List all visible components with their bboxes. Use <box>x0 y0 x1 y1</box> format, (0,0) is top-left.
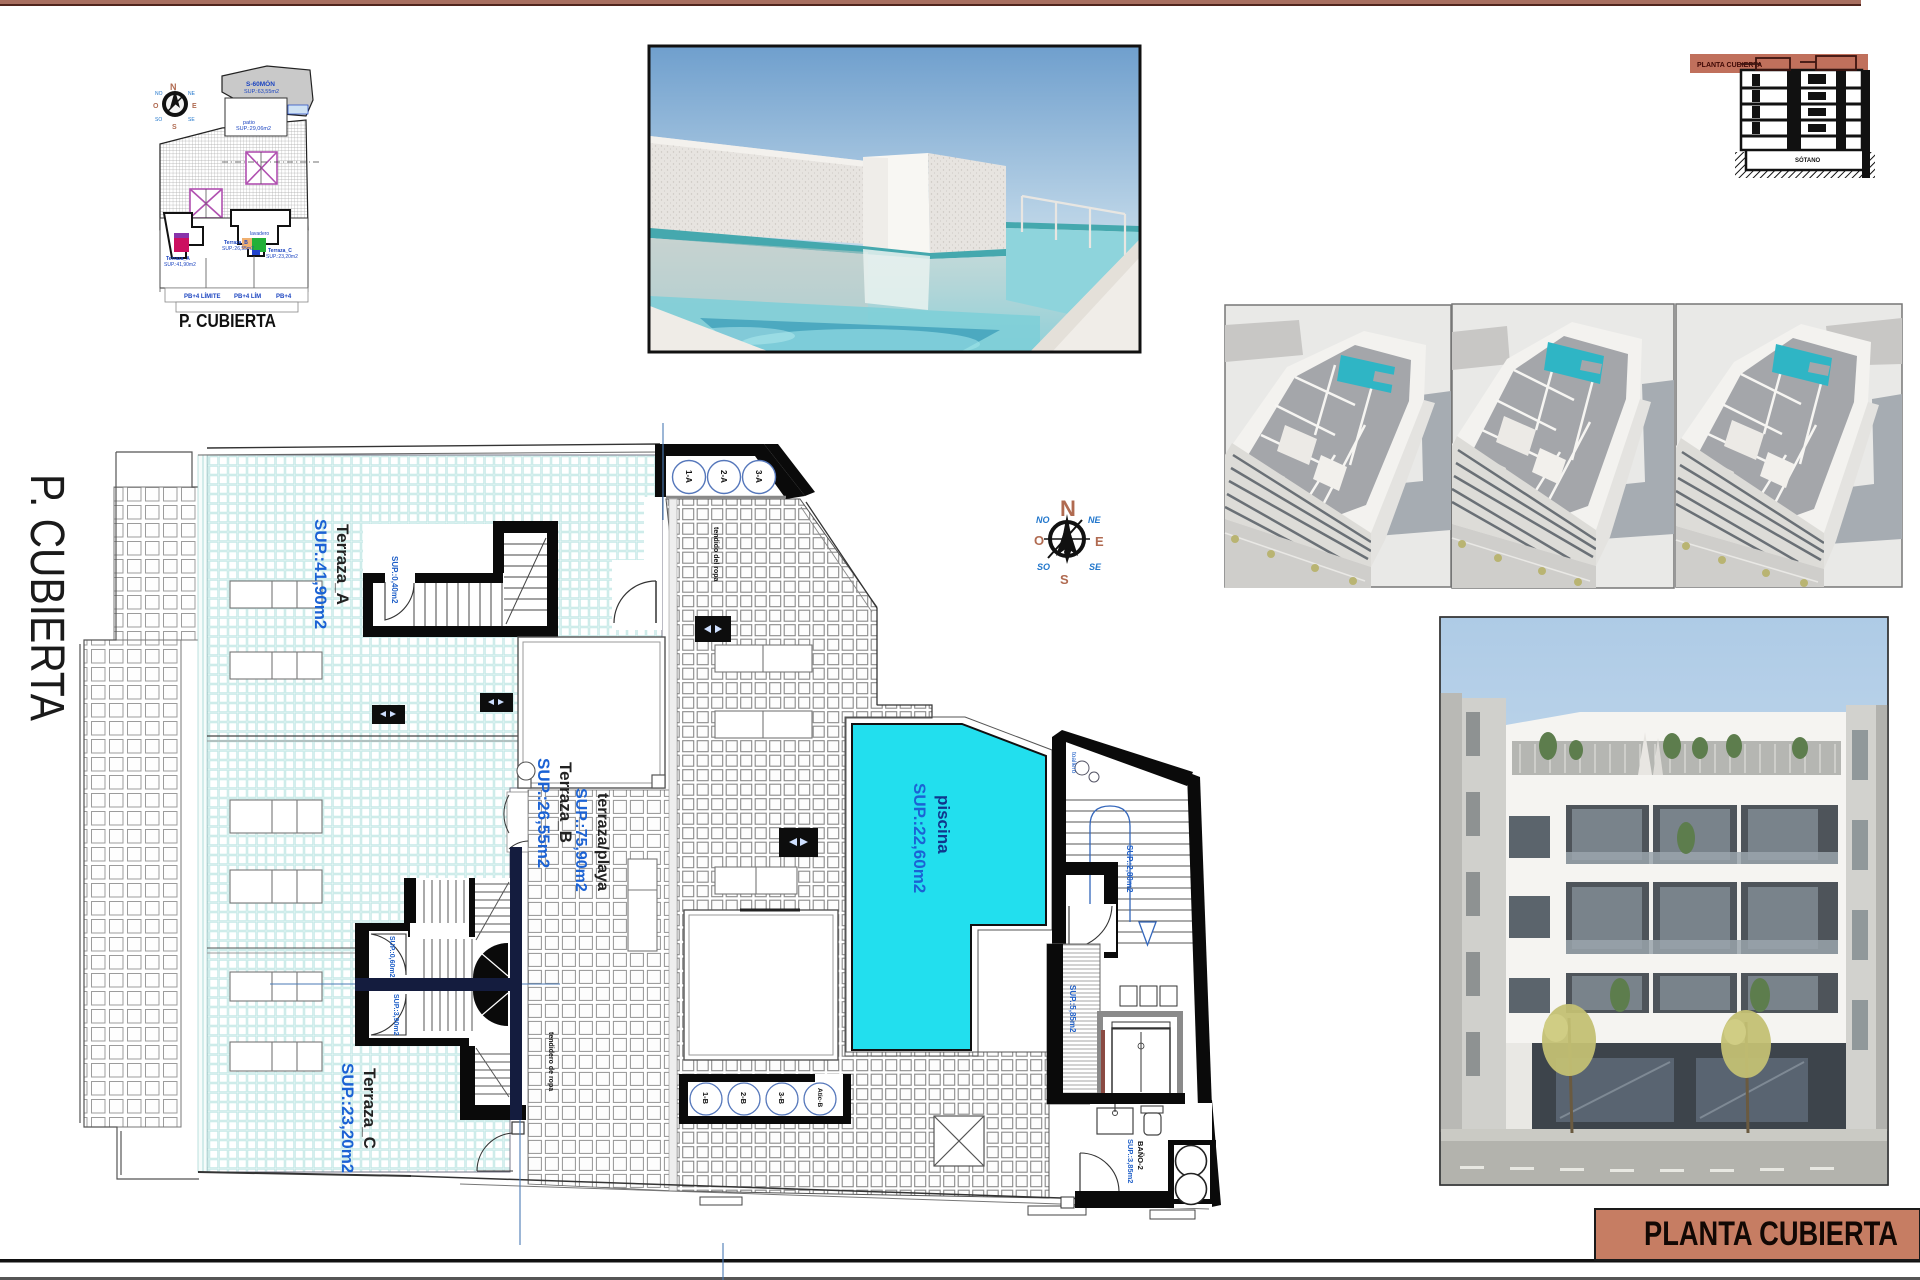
svg-text:SE: SE <box>1089 562 1102 572</box>
svg-text:terraza/playa: terraza/playa <box>594 793 611 891</box>
svg-text:N: N <box>170 82 177 92</box>
svg-text:SUP.:0,60m2: SUP.:0,60m2 <box>388 936 395 978</box>
svg-text:NE: NE <box>188 91 196 97</box>
svg-text:Terraza_A: Terraza_A <box>333 524 352 605</box>
svg-text:PB+4 LÍMITE: PB+4 LÍMITE <box>184 292 221 300</box>
svg-text:BAÑO-2: BAÑO-2 <box>1136 1141 1145 1170</box>
svg-text:SUP.:23,20m2: SUP.:23,20m2 <box>266 254 298 260</box>
svg-text:SO: SO <box>1037 562 1050 572</box>
svg-text:NO: NO <box>155 91 163 97</box>
svg-text:SUP.:41,90m2: SUP.:41,90m2 <box>311 519 330 629</box>
svg-text:SUP.:29,06m2: SUP.:29,06m2 <box>236 126 271 132</box>
svg-text:PLANTA CUBIERTA: PLANTA CUBIERTA <box>1697 62 1762 69</box>
svg-text:piscina: piscina <box>934 795 953 854</box>
svg-text:O: O <box>153 103 159 110</box>
svg-text:SUP.:3,90m2: SUP.:3,90m2 <box>392 994 399 1036</box>
svg-text:tendido del ropa: tendido del ropa <box>712 527 719 582</box>
svg-text:NE: NE <box>1088 515 1101 525</box>
svg-text:PLANTA CUBIERTA: PLANTA CUBIERTA <box>1644 1215 1898 1253</box>
svg-text:Atic-B: Atic-B <box>816 1088 823 1107</box>
svg-text:S: S <box>1060 572 1069 587</box>
svg-text:E: E <box>1095 534 1104 549</box>
svg-text:3-B: 3-B <box>777 1092 786 1105</box>
svg-text:P. CUBIERTA: P. CUBIERTA <box>179 311 276 331</box>
svg-text:SUP.:0,40m2: SUP.:0,40m2 <box>390 556 399 604</box>
svg-text:S: S <box>172 124 177 131</box>
svg-text:SUP.:26,55m2: SUP.:26,55m2 <box>222 246 254 252</box>
svg-text:2-A: 2-A <box>719 470 728 483</box>
svg-text:PB+4: PB+4 <box>276 294 292 300</box>
svg-text:NO: NO <box>1036 515 1050 525</box>
svg-text:SUP.:22,60m2: SUP.:22,60m2 <box>910 783 929 893</box>
svg-text:O: O <box>1034 533 1044 548</box>
svg-text:E: E <box>192 103 197 110</box>
svg-text:1-B: 1-B <box>701 1092 710 1105</box>
svg-text:tendidero de ropa: tendidero de ropa <box>547 1032 554 1091</box>
svg-text:lavadero: lavadero <box>250 231 269 237</box>
svg-text:SUP.:2,80m2: SUP.:2,80m2 <box>1125 845 1134 893</box>
svg-text:SO: SO <box>155 117 162 123</box>
svg-text:SUP.:5,85m2: SUP.:5,85m2 <box>1068 985 1077 1033</box>
svg-text:SÓTANO: SÓTANO <box>1795 156 1821 164</box>
svg-text:SUP.:41,90m2: SUP.:41,90m2 <box>164 262 196 268</box>
svg-text:SUP.:23,20m2: SUP.:23,20m2 <box>338 1063 357 1173</box>
svg-text:1-A: 1-A <box>684 470 693 483</box>
svg-text:PB+4 LÍM: PB+4 LÍM <box>234 292 261 300</box>
svg-text:3-A: 3-A <box>754 470 763 483</box>
svg-text:SUP.:26,55m2: SUP.:26,55m2 <box>534 758 553 868</box>
svg-text:S-60MÓN: S-60MÓN <box>246 79 275 88</box>
svg-text:SUP.:75,90m2: SUP.:75,90m2 <box>572 788 589 892</box>
svg-text:toallero: toallero <box>1070 752 1077 774</box>
svg-text:N: N <box>1060 496 1076 521</box>
svg-text:Terraza_C: Terraza_C <box>360 1068 379 1149</box>
svg-text:P. CUBIERTA: P. CUBIERTA <box>20 474 73 721</box>
svg-text:SUP.:63,55m2: SUP.:63,55m2 <box>244 89 279 95</box>
svg-text:2-B: 2-B <box>739 1092 748 1105</box>
svg-text:SE: SE <box>188 117 195 123</box>
svg-text:SUP.:3,85m2: SUP.:3,85m2 <box>1126 1139 1135 1183</box>
